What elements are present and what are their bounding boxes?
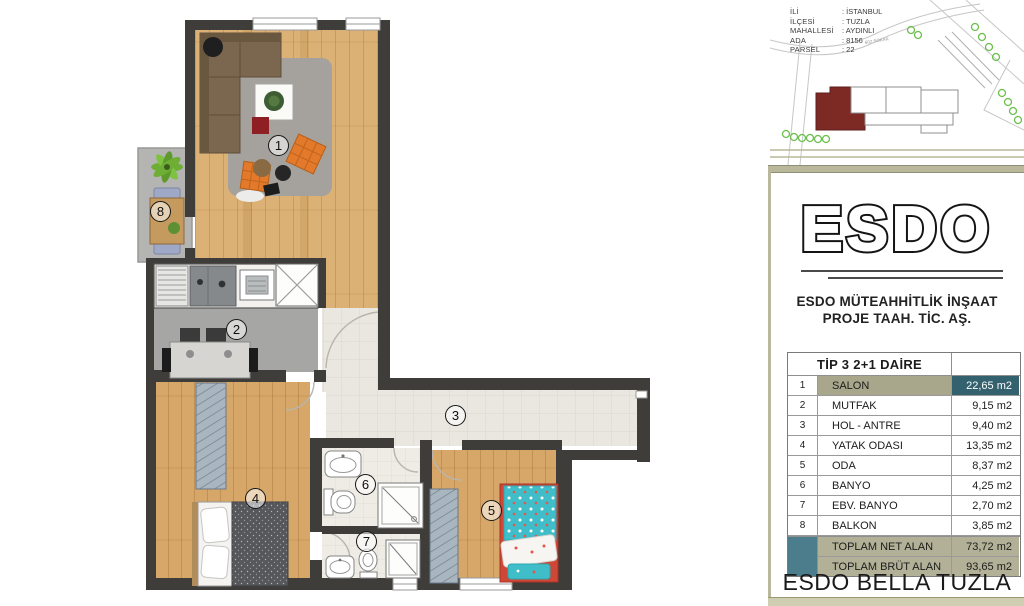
room-number-balkon: 8 [150, 201, 171, 222]
entrance-door [636, 391, 647, 398]
row-no: 8 [788, 516, 818, 535]
table-row: 1 SALON 22,65 m2 [788, 376, 1020, 396]
chair [249, 348, 258, 372]
row-area: 9,15 m2 [952, 396, 1019, 415]
coffee-table [255, 84, 293, 120]
info-value: : 22 [842, 45, 950, 55]
row-name: BANYO [818, 476, 952, 495]
window [346, 18, 380, 30]
shower [386, 540, 420, 578]
panel-bottom-frame [768, 597, 1024, 606]
table-row: 4 YATAK ODASI 13,35 m2 [788, 436, 1020, 456]
pillow [201, 545, 230, 579]
rug-edge [236, 190, 264, 202]
row-no: 4 [788, 436, 818, 455]
pillow [200, 507, 229, 544]
wardrobe [196, 383, 226, 489]
logo-text-inner: ESDO [801, 195, 993, 264]
row-no: 3 [788, 416, 818, 435]
stove [240, 270, 274, 300]
red-cushion [252, 117, 269, 134]
table-row: 5 ODA 8,37 m2 [788, 456, 1020, 476]
esdo-logo: ESDO ESDO [770, 172, 1024, 290]
fridge [276, 264, 318, 306]
row-no: 1 [788, 376, 818, 395]
table-title: TİP 3 2+1 DAİRE [788, 353, 952, 375]
antre-tile-floor [322, 308, 378, 392]
window [393, 578, 417, 590]
row-area: 2,70 m2 [952, 496, 1019, 515]
info-value: : 8156 [842, 36, 950, 46]
company-line1: ESDO MÜTEAHHİTLİK İNŞAAT [770, 293, 1024, 310]
company-line2: PROJE TAAH. TİC. AŞ. [770, 310, 1024, 327]
row-no: 7 [788, 496, 818, 515]
row-name: HOL - ANTRE [818, 416, 952, 435]
shower [378, 483, 423, 528]
info-value: : AYDINLI [842, 26, 950, 36]
sink [326, 556, 354, 578]
company-name: ESDO MÜTEAHHİTLİK İNŞAAT PROJE TAAH. TİC… [770, 293, 1024, 327]
row-area: 22,65 m2 [952, 376, 1019, 395]
info-label: PARSEL [790, 45, 842, 55]
pillow [508, 564, 550, 579]
row-area: 4,25 m2 [952, 476, 1019, 495]
floor-plan-sheet: 1 2 3 4 5 6 7 8 [0, 0, 1024, 606]
row-area: 8,37 m2 [952, 456, 1019, 475]
info-label: İLİ [790, 7, 842, 17]
table-row: 2 MUTFAK 9,15 m2 [788, 396, 1020, 416]
row-area: 13,35 m2 [952, 436, 1019, 455]
row-name: ODA [818, 456, 952, 475]
chair [206, 328, 226, 343]
area-table: TİP 3 2+1 DAİRE 1 SALON 22,65 m2 2 MUTFA… [787, 352, 1021, 577]
hall-floor [326, 390, 637, 446]
sink [325, 451, 361, 477]
info-label: ADA [790, 36, 842, 46]
double-bed [192, 502, 288, 586]
table-plant [168, 222, 180, 234]
table-header-spacer [952, 353, 1019, 375]
row-area: 9,40 m2 [952, 416, 1019, 435]
antre-wood-floor [326, 262, 378, 310]
window [253, 18, 317, 30]
wardrobe [430, 489, 458, 583]
room-number-salon: 1 [268, 135, 289, 156]
sink [190, 266, 236, 306]
row-name: BALKON [818, 516, 952, 535]
row-no: 5 [788, 456, 818, 475]
row-name: SALON [818, 376, 952, 395]
total-row: TOPLAM NET ALAN 73,72 m2 [818, 537, 1019, 557]
room-number-ebvbanyo: 7 [356, 531, 377, 552]
row-name: EBV. BANYO [818, 496, 952, 515]
row-name: YATAK ODASI [818, 436, 952, 455]
chair [180, 328, 200, 343]
side-table [275, 165, 291, 181]
row-no: 6 [788, 476, 818, 495]
table-row: 8 BALKON 3,85 m2 [788, 516, 1020, 536]
info-label: İLÇESİ [790, 17, 842, 27]
room-number-yatak: 4 [245, 488, 266, 509]
room-number-oda: 5 [481, 500, 502, 521]
floor-plan [0, 0, 770, 606]
floor-lamp [203, 37, 223, 57]
table-row: 3 HOL - ANTRE 9,40 m2 [788, 416, 1020, 436]
row-name: MUTFAK [818, 396, 952, 415]
info-label: MAHALLESİ [790, 26, 842, 36]
table-row: 6 BANYO 4,25 m2 [788, 476, 1020, 496]
chair [162, 348, 171, 372]
room-number-mutfak: 2 [226, 319, 247, 340]
total-area: 73,72 m2 [952, 537, 1019, 556]
drainboard [156, 266, 188, 306]
table-header: TİP 3 2+1 DAİRE [788, 353, 1020, 376]
total-name: TOPLAM NET ALAN [818, 537, 952, 556]
info-value: : TUZLA [842, 17, 950, 27]
toilet [359, 549, 377, 578]
toilet [324, 489, 355, 515]
parcel-info: İLİ: İSTANBUL İLÇESİ: TUZLA MAHALLESİ: A… [790, 7, 950, 55]
dining-table [170, 342, 250, 378]
room-number-banyo: 6 [355, 474, 376, 495]
row-no: 2 [788, 396, 818, 415]
room-number-hol: 3 [445, 405, 466, 426]
info-value: : İSTANBUL [842, 7, 950, 17]
stool [253, 159, 271, 177]
table-row: 7 EBV. BANYO 2,70 m2 [788, 496, 1020, 516]
single-bed [500, 484, 558, 582]
row-area: 3,85 m2 [952, 516, 1019, 535]
project-title: ESDO BELLA TUZLA [770, 569, 1024, 596]
